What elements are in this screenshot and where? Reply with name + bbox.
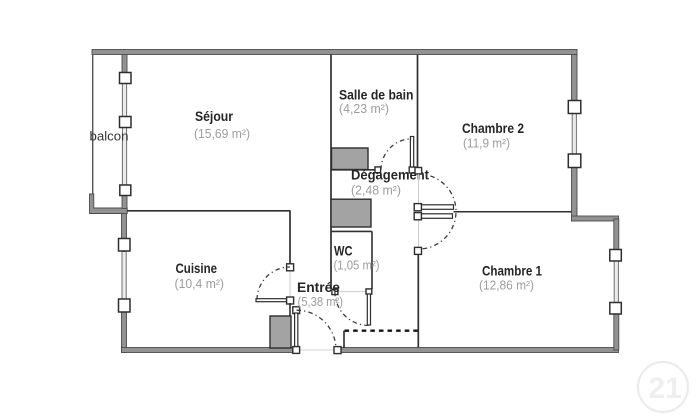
svg-text:(4,23 m²): (4,23 m²) [339,101,389,116]
svg-text:balcon: balcon [90,130,129,144]
svg-text:Séjour: Séjour [195,108,233,124]
svg-text:(10,4 m²): (10,4 m²) [175,276,225,291]
svg-text:(1,05 m²): (1,05 m²) [334,258,380,273]
svg-text:Cuisine: Cuisine [176,260,218,276]
svg-text:(15,69 m²): (15,69 m²) [194,126,250,141]
svg-text:(2,48 m²): (2,48 m²) [351,183,401,198]
svg-text:Entrée: Entrée [297,279,340,295]
svg-text:21: 21 [648,372,681,405]
svg-text:(11,9 m²): (11,9 m²) [463,136,510,151]
svg-text:Chambre 1: Chambre 1 [482,263,542,279]
svg-text:WC: WC [334,243,353,259]
svg-text:(5,38 m²): (5,38 m²) [298,294,344,309]
svg-text:Chambre 2: Chambre 2 [462,120,524,136]
svg-text:Salle de bain: Salle de bain [339,86,414,102]
svg-text:(12,86 m²): (12,86 m²) [479,278,534,293]
